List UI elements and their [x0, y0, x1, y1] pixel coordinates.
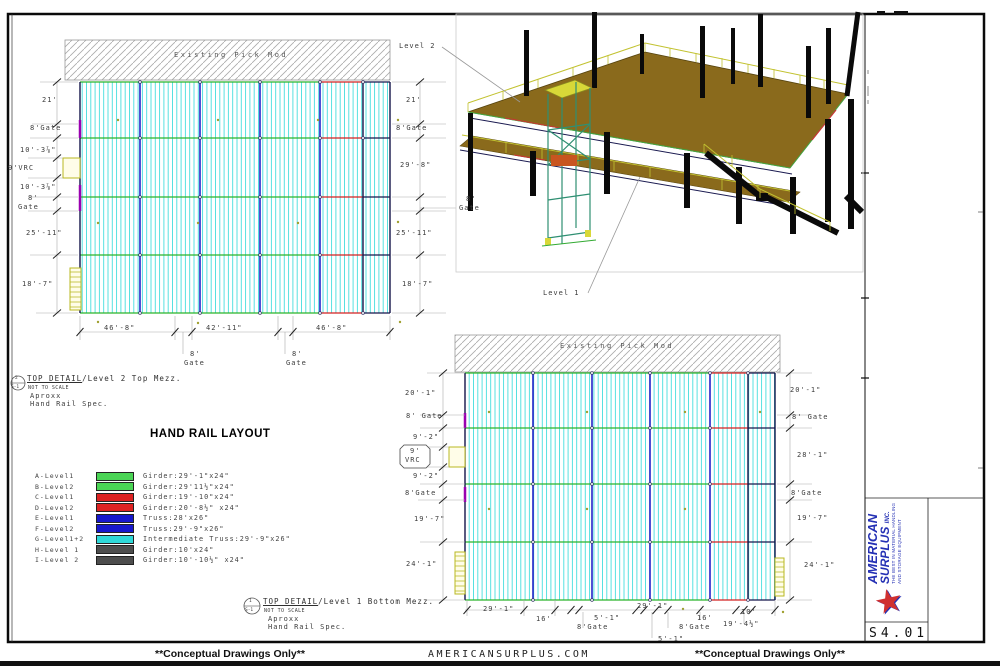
view3d-level1-label: Level 1 — [543, 289, 580, 297]
legend-key: I-Level 2 — [35, 556, 96, 564]
plan1-dim-right-2: 8' Gate — [792, 413, 829, 421]
plan2-caption-scale: NOT TO SCALE — [28, 386, 69, 392]
legend-swatch — [96, 503, 134, 512]
legend-swatch — [96, 524, 134, 533]
plan2-existing-label: Existing Pick Mod — [174, 51, 288, 59]
plan1-dim-left-6: 8'Gate — [405, 489, 436, 497]
legend-row: D-Level2Girder:20'-8½" x24" — [35, 503, 335, 513]
legend-label: Truss:28'x26" — [143, 514, 209, 522]
plan-level2-linework — [11, 40, 456, 390]
plan1-dim-left-5: 9'-2" — [413, 472, 439, 480]
plan2-dim-left-4: 9'VRC — [8, 164, 34, 172]
plan1-dim-right-6: 24'-1" — [804, 561, 835, 569]
plan2-caption-note2: Hand Rail Spec. — [30, 400, 108, 408]
legend-key: H-Level 1 — [35, 546, 96, 554]
legend-row: H-Level 1Girder:10'x24" — [35, 545, 335, 555]
plan2-dim-bottom-3: 46'-8" — [316, 324, 347, 332]
plan2-dim-left-8: 25'-11" — [26, 229, 63, 237]
plan2-dim-right-2: 8'Gate — [396, 124, 427, 132]
legend-row: C-Level1Girder:19'-10"x24" — [35, 492, 335, 502]
legend-swatch — [96, 545, 134, 554]
legend-row: F-Level2Truss:29'-9"x26" — [35, 524, 335, 534]
plan2-dim-left-6: 8' — [28, 194, 38, 202]
legend-row: B-Level2Girder:29'11½"x24" — [35, 482, 335, 492]
legend-key: D-Level2 — [35, 504, 96, 512]
legend-label: Girder:29'11½"x24" — [143, 483, 235, 491]
plan1-dim-left-2: 8' Gate — [406, 412, 443, 420]
drawing-linework — [0, 0, 1000, 666]
plan1-dim-right-1: 20'-1" — [790, 386, 821, 394]
plan1-dim-bottom-5: 29'-1" — [637, 602, 668, 610]
legend-label: Girder:20'-8½" x24" — [143, 504, 240, 512]
plan2-caption-title: TOP DETAIL/Level 2 Top Mezz. — [27, 375, 181, 384]
plan1-dim-bottom-7: 8'Gate — [679, 623, 710, 631]
legend-key: F-Level2 — [35, 525, 96, 533]
plan2-dim-left-5: 10'-3⅞" — [20, 183, 57, 191]
sheet-number: S4.01 — [869, 626, 928, 641]
legend-label: Girder:29'-1"x24" — [143, 472, 230, 480]
legend-label: Truss:29'-9"x26" — [143, 525, 224, 533]
logo-tagline2: AND STORAGE EQUIPMENT — [897, 500, 903, 584]
view-3d — [442, 12, 863, 293]
plan2-dim-left-2: 8'Gate — [30, 124, 61, 132]
plan1-caption-title: TOP DETAIL/Level 1 Bottom Mezz. — [263, 598, 434, 607]
plan2-gate1-b: Gate — [184, 359, 205, 367]
plan1-caption-note2: Hand Rail Spec. — [268, 623, 346, 631]
footer-left-note: **Conceptual Drawings Only** — [155, 648, 305, 660]
plan1-dim-left-4a: 9' — [410, 447, 420, 455]
legend-row: A-Level1Girder:29'-1"x24" — [35, 471, 335, 481]
legend-label: Intermediate Truss:29'-9"x26" — [143, 535, 291, 543]
plan1-bubble-bot: S-1 — [245, 608, 253, 613]
plan2-caption-name: /Level 2 Top Mezz. — [82, 374, 181, 383]
legend-swatch — [96, 556, 134, 565]
legend-key: E-Level1 — [35, 514, 96, 522]
plan1-caption-note1: Aproxx — [268, 615, 299, 623]
plan1-caption-ref: TOP DETAIL — [263, 597, 318, 606]
plan2-dim-right-1: 21' — [406, 96, 422, 104]
plan2-gate2-b: Gate — [286, 359, 307, 367]
legend-key: A-Level1 — [35, 472, 96, 480]
plan2-caption-ref: TOP DETAIL — [27, 374, 82, 383]
plan2-dim-left-9: 18'-7" — [22, 280, 53, 288]
legend-label: Girder:10'x24" — [143, 546, 214, 554]
legend-swatch — [96, 472, 134, 481]
plan1-dim-right-5: 19'-7" — [797, 514, 828, 522]
plan1-dim-bottom-2: 16' — [536, 615, 552, 623]
plan2-gate-callout-b: Gate — [459, 204, 480, 212]
plan1-dim-left-8: 24'-1" — [406, 560, 437, 568]
legend-label: Girder:10'-10½" x24" — [143, 556, 245, 564]
plan1-dim-bottom-1: 29'-1" — [483, 605, 514, 613]
drawing-sheet: Existing Pick Mod 21' 8'Gate 10'-3⅞" 9'V… — [0, 0, 1000, 666]
plan2-dim-bottom-1: 46'-8" — [104, 324, 135, 332]
plan2-gate2-a: 8' — [292, 350, 302, 358]
legend-key: G-Level1+2 — [35, 535, 96, 543]
legend-label: Girder:19'-10"x24" — [143, 493, 235, 501]
legend-row: I-Level 2Girder:10'-10½" x24" — [35, 555, 335, 565]
plan2-bubble-top: 2 — [15, 376, 18, 381]
footer-website: AMERICANSURPLUS.COM — [428, 649, 590, 660]
legend-swatch — [96, 514, 134, 523]
legend-swatch — [96, 535, 134, 544]
legend-title: HAND RAIL LAYOUT — [150, 428, 270, 440]
view3d-level2-label: Level 2 — [399, 42, 436, 50]
plan2-caption-note1: Aproxx — [30, 392, 61, 400]
plan1-bubble-top: 1 — [249, 599, 252, 604]
plan1-existing-label: Existing Pick Mod — [560, 342, 674, 350]
plan1-dim-bottom-9: 19'-4½" — [723, 620, 760, 628]
plan1-dim-left-3: 9'-2" — [413, 433, 439, 441]
plan2-dim-right-3: 29'-8" — [400, 161, 431, 169]
legend-row: E-Level1Truss:28'x26" — [35, 513, 335, 523]
plan1-dim-left-7: 19'-7" — [414, 515, 445, 523]
plan2-dim-right-5: 18'-7" — [402, 280, 433, 288]
legend-key: B-Level2 — [35, 483, 96, 491]
plan1-dim-bottom-3: 8'Gate — [577, 623, 608, 631]
plan1-dim-bottom-6: 5'-1" — [658, 635, 684, 643]
legend-swatch — [96, 482, 134, 491]
plan2-dim-left-3: 10'-3⅞" — [20, 146, 57, 154]
plan2-dim-left-1: 21' — [42, 96, 58, 104]
plan2-bubble-bot: S-1 — [11, 385, 19, 390]
plan1-dim-right-4: 8'Gate — [791, 489, 822, 497]
legend-swatch — [96, 493, 134, 502]
plan1-dim-right-3: 28'-1" — [797, 451, 828, 459]
plan2-dim-right-4: 25'-11" — [396, 229, 433, 237]
plan2-dim-bottom-2: 42'-11" — [206, 324, 243, 332]
footer-right-note: **Conceptual Drawings Only** — [695, 648, 845, 660]
plan1-caption-name: /Level 1 Bottom Mezz. — [318, 597, 434, 606]
plan1-dim-bottom-4: 5'-1" — [594, 614, 620, 622]
plan1-dim-left-4b: VRC — [405, 456, 421, 464]
plan1-dim-left-1: 20'-1" — [405, 389, 436, 397]
plan1-dim-bottom-10: 10' — [741, 608, 757, 616]
plan2-gate1-a: 8' — [190, 350, 200, 358]
legend-row: G-Level1+2Intermediate Truss:29'-9"x26" — [35, 534, 335, 544]
plan1-dim-bottom-8: 16' — [697, 614, 713, 622]
plan2-gate-callout-a: 8' — [466, 195, 476, 203]
plan2-dim-left-7: Gate — [18, 203, 39, 211]
plan1-caption-scale: NOT TO SCALE — [264, 609, 305, 615]
legend-key: C-Level1 — [35, 493, 96, 501]
